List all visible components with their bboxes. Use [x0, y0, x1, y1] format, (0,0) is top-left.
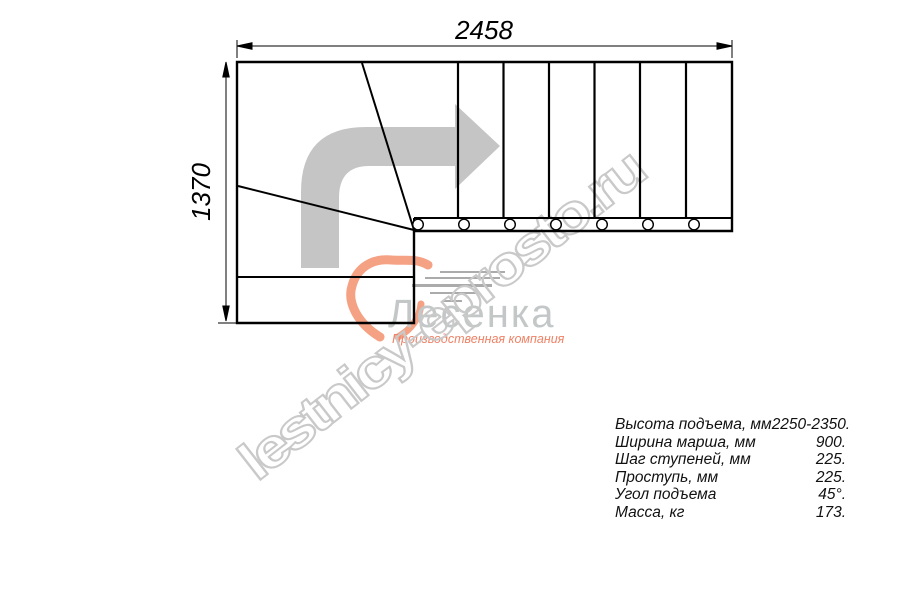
- stair-plan-page: Лесенка Производственная компания lestni…: [0, 0, 900, 600]
- dim-height-label: 1370: [186, 163, 216, 221]
- specs-list: Высота подъема, мм2250-2350.Ширина марша…: [615, 416, 846, 522]
- dim-arrow-up: [223, 62, 229, 77]
- baluster-circle: [459, 219, 470, 230]
- baluster-circle: [689, 219, 700, 230]
- spec-label: Проступь, мм: [615, 469, 718, 487]
- baluster-circle: [643, 219, 654, 230]
- dim-arrow-down: [223, 306, 229, 321]
- spec-value: 2250-2350.: [772, 416, 850, 434]
- baluster-circle: [597, 219, 608, 230]
- baluster-circle: [413, 219, 424, 230]
- dimension-left: 1370: [186, 62, 236, 323]
- spec-label: Шаг ступеней, мм: [615, 451, 751, 469]
- spec-value: 173.: [816, 504, 846, 522]
- spec-row: Угол подъема45°.: [615, 486, 846, 504]
- dim-arrow-right: [717, 43, 732, 49]
- spec-row: Высота подъема, мм2250-2350.: [615, 416, 846, 434]
- balusters: [413, 219, 700, 230]
- spec-label: Ширина марша, мм: [615, 434, 756, 452]
- spec-label: Масса, кг: [615, 504, 684, 522]
- dimension-top: 2458: [237, 15, 732, 58]
- spec-value: 225.: [816, 451, 846, 469]
- spec-label: Высота подъема, мм: [615, 416, 772, 434]
- specs-panel: Высота подъема, мм2250-2350.Ширина марша…: [615, 416, 846, 522]
- spec-row: Проступь, мм225.: [615, 469, 846, 487]
- spec-row: Ширина марша, мм900.: [615, 434, 846, 452]
- spec-row: Масса, кг173.: [615, 504, 846, 522]
- baluster-circle: [505, 219, 516, 230]
- spec-value: 225.: [816, 469, 846, 487]
- dim-width-label: 2458: [454, 15, 513, 45]
- spec-label: Угол подъема: [615, 486, 716, 504]
- spec-value: 900.: [816, 434, 846, 452]
- baluster-circle: [551, 219, 562, 230]
- spec-value: 45°.: [818, 486, 846, 504]
- dim-arrow-left: [237, 43, 252, 49]
- watermark-text: lestnicy-eprosto.ru: [227, 139, 655, 492]
- spec-row: Шаг ступеней, мм225.: [615, 451, 846, 469]
